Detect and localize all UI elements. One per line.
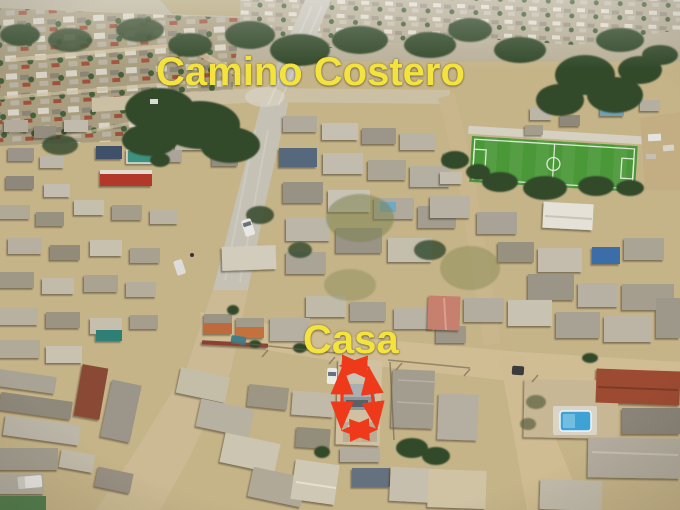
vignette-overlay (0, 0, 680, 510)
aerial-photo: Camino Costero Casa (0, 0, 680, 510)
photo-canvas (0, 0, 680, 510)
